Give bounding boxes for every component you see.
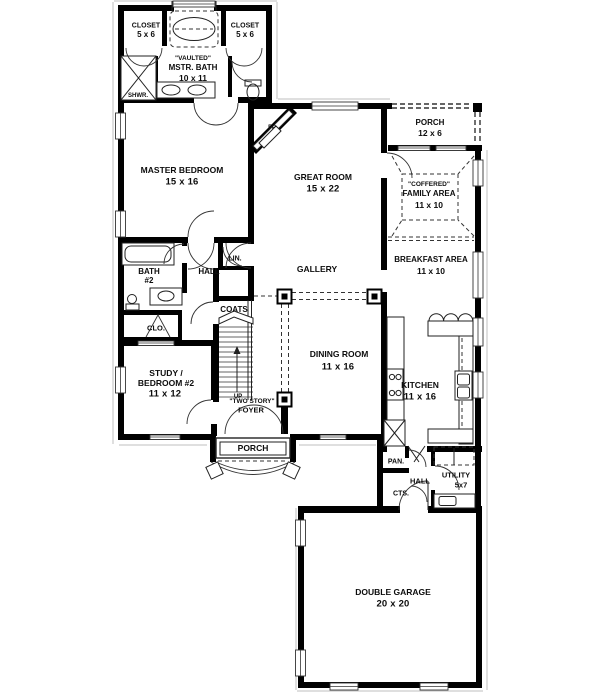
label-shower: SHWR. xyxy=(128,93,148,99)
label-dining-room: DINING ROOM xyxy=(310,350,369,359)
label-mstr-bath-note: "VAULTED" xyxy=(175,56,211,63)
staircase xyxy=(219,300,253,400)
label-bath2: BATH xyxy=(138,268,160,276)
tub xyxy=(173,18,215,41)
column xyxy=(278,290,292,304)
label-closet-right: CLOSET xyxy=(231,23,259,30)
floor-plan: CLOSET 5 x 6 CLOSET 5 x 6 "VAULTED" MSTR… xyxy=(0,0,600,700)
pedestal-sink xyxy=(128,295,137,304)
label-utility-dim: 5x7 xyxy=(455,481,468,489)
label-bath2-num: #2 xyxy=(145,277,154,285)
label-pantry: PAN. xyxy=(388,459,404,466)
label-study-line2: BEDROOM #2 xyxy=(138,379,194,388)
toilet xyxy=(245,80,261,86)
label-breakfast-area: BREAKFAST AREA xyxy=(394,256,467,264)
label-mstr-bath: MSTR. BATH xyxy=(169,64,218,72)
label-kitchen-dim: 11 x 16 xyxy=(404,392,437,402)
coffered-ceiling xyxy=(388,156,474,241)
label-family-area: FAMILY AREA xyxy=(402,190,455,198)
label-porch-upper-dim: 12 x 6 xyxy=(418,129,442,138)
breakfast-bar xyxy=(428,321,473,336)
label-closet-left: CLOSET xyxy=(132,23,160,30)
label-closet-right-dim: 5 x 6 xyxy=(236,31,254,39)
planter xyxy=(206,462,223,479)
label-garage-dim: 20 x 20 xyxy=(376,599,409,609)
label-gallery: GALLERY xyxy=(297,265,337,274)
column xyxy=(368,290,382,304)
label-master-bedroom-dim: 15 x 16 xyxy=(165,177,198,187)
label-master-bedroom: MASTER BEDROOM xyxy=(141,166,224,175)
label-closet-small: CLO. xyxy=(147,324,165,332)
label-foyer: FOYER xyxy=(238,406,264,414)
label-linen: LIN. xyxy=(228,256,241,263)
label-coat-closet: CTS. xyxy=(393,491,409,498)
label-breakfast-dim: 11 x 10 xyxy=(417,267,445,276)
label-family-note: "COFFERED" xyxy=(408,182,450,189)
porch-steps xyxy=(211,462,295,475)
label-garage: DOUBLE GARAGE xyxy=(355,588,431,597)
label-hall-lower: HALL xyxy=(410,477,430,485)
planter xyxy=(283,462,300,479)
label-study-dim: 11 x 12 xyxy=(149,389,182,399)
label-kitchen: KITCHEN xyxy=(401,381,439,390)
label-study-line1: STUDY / xyxy=(149,369,182,378)
label-family-area-dim: 11 x 10 xyxy=(415,201,443,210)
floor-plan-drawing xyxy=(0,0,600,700)
column xyxy=(278,393,292,407)
label-coats: COATS xyxy=(220,306,247,314)
breakfast-bar-scallops xyxy=(429,314,473,321)
kitchen-counter-bottom xyxy=(428,429,473,443)
label-closet-left-dim: 5 x 6 xyxy=(137,31,155,39)
label-porch-upper: PORCH xyxy=(416,119,445,127)
label-great-room-dim: 15 x 22 xyxy=(306,184,339,194)
label-porch-lower: PORCH xyxy=(238,444,269,453)
label-fireplace: FP xyxy=(268,125,276,131)
label-hall-upper: HALL xyxy=(198,268,219,276)
label-great-room: GREAT ROOM xyxy=(294,173,352,182)
label-mstr-bath-dim: 10 x 11 xyxy=(179,74,207,83)
label-utility: UTILITY xyxy=(442,471,470,479)
family-door xyxy=(387,153,412,178)
label-dining-room-dim: 11 x 16 xyxy=(322,362,355,372)
